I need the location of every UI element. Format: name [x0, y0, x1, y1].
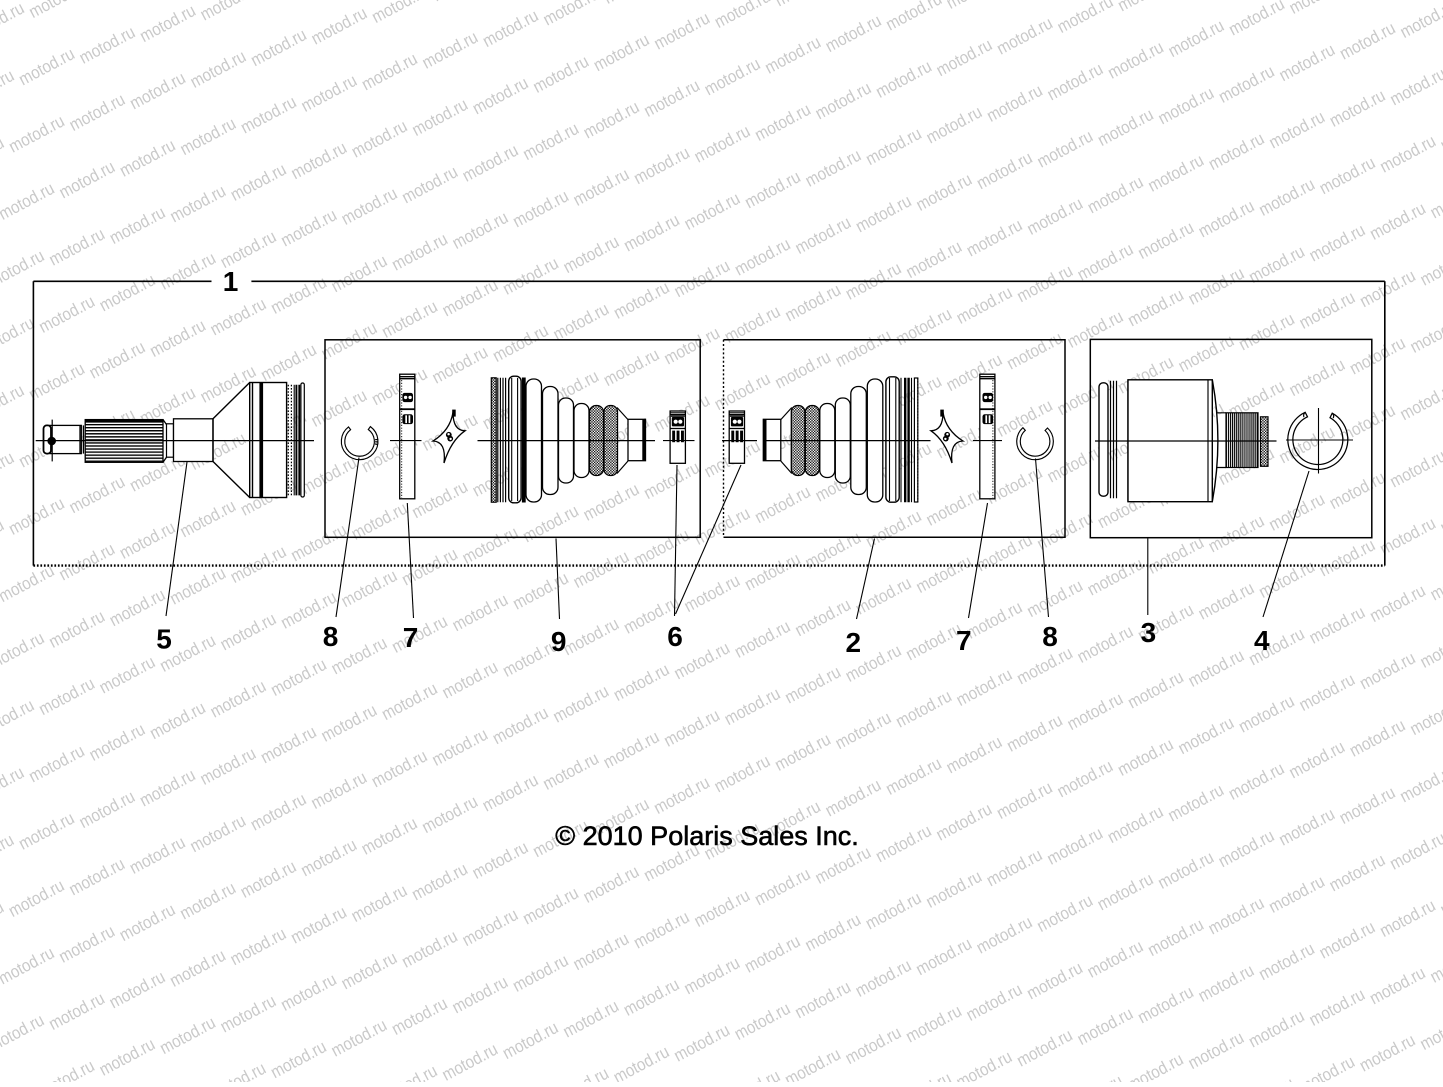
- svg-text:motod.ru: motod.ru: [550, 1064, 612, 1082]
- svg-text:motod.ru: motod.ru: [1407, 1076, 1443, 1082]
- svg-text:motod.ru: motod.ru: [601, 0, 663, 8]
- svg-text:motod.ru: motod.ru: [469, 838, 531, 883]
- svg-text:motod.ru: motod.ru: [268, 655, 330, 700]
- svg-text:motod.ru: motod.ru: [651, 9, 713, 54]
- svg-text:motod.ru: motod.ru: [671, 256, 733, 301]
- svg-text:motod.ru: motod.ru: [641, 458, 703, 503]
- svg-text:motod.ru: motod.ru: [772, 730, 834, 775]
- svg-text:motod.ru: motod.ru: [691, 886, 753, 931]
- svg-text:motod.ru: motod.ru: [298, 453, 360, 498]
- svg-text:motod.ru: motod.ru: [1336, 401, 1398, 446]
- svg-text:motod.ru: motod.ru: [207, 294, 269, 339]
- svg-text:motod.ru: motod.ru: [711, 0, 773, 32]
- svg-text:motod.ru: motod.ru: [1104, 802, 1166, 847]
- svg-text:motod.ru: motod.ru: [1407, 694, 1443, 739]
- svg-text:motod.ru: motod.ru: [439, 1040, 501, 1082]
- svg-text:motod.ru: motod.ru: [96, 1035, 158, 1080]
- svg-text:motod.ru: motod.ru: [852, 956, 914, 1001]
- svg-text:motod.ru: motod.ru: [86, 720, 148, 765]
- svg-text:motod.ru: motod.ru: [1326, 86, 1388, 131]
- svg-text:motod.ru: motod.ru: [348, 881, 410, 926]
- svg-text:motod.ru: motod.ru: [1195, 579, 1257, 624]
- svg-text:motod.ru: motod.ru: [974, 148, 1036, 193]
- svg-text:motod.ru: motod.ru: [1095, 105, 1157, 150]
- svg-text:motod.ru: motod.ru: [419, 792, 481, 837]
- svg-text:motod.ru: motod.ru: [419, 28, 481, 73]
- svg-text:motod.ru: motod.ru: [439, 658, 501, 703]
- svg-text:motod.ru: motod.ru: [520, 501, 582, 546]
- svg-text:motod.ru: motod.ru: [1397, 379, 1443, 424]
- svg-text:motod.ru: motod.ru: [943, 0, 1005, 13]
- svg-text:motod.ru: motod.ru: [247, 790, 309, 835]
- svg-text:motod.ru: motod.ru: [671, 1021, 733, 1066]
- svg-text:motod.ru: motod.ru: [1034, 127, 1096, 172]
- svg-text:motod.ru: motod.ru: [147, 316, 209, 361]
- svg-text:motod.ru: motod.ru: [742, 550, 804, 595]
- svg-text:1: 1: [223, 266, 239, 297]
- svg-text:motod.ru: motod.ru: [1336, 783, 1398, 828]
- svg-text:motod.ru: motod.ru: [1276, 422, 1338, 467]
- svg-text:motod.ru: motod.ru: [752, 864, 814, 909]
- svg-text:motod.ru: motod.ru: [500, 254, 562, 299]
- svg-text:motod.ru: motod.ru: [399, 545, 461, 590]
- svg-text:motod.ru: motod.ru: [318, 319, 380, 364]
- svg-text:motod.ru: motod.ru: [953, 1047, 1015, 1082]
- svg-text:motod.ru: motod.ru: [449, 208, 511, 253]
- svg-text:8: 8: [323, 621, 339, 652]
- svg-text:motod.ru: motod.ru: [298, 71, 360, 116]
- svg-text:motod.ru: motod.ru: [167, 181, 229, 226]
- svg-text:motod.ru: motod.ru: [923, 485, 985, 530]
- svg-text:motod.ru: motod.ru: [36, 674, 98, 719]
- svg-text:motod.ru: motod.ru: [984, 81, 1046, 126]
- svg-text:motod.ru: motod.ru: [1266, 872, 1328, 917]
- svg-text:9: 9: [551, 626, 567, 657]
- svg-text:motod.ru: motod.ru: [0, 0, 27, 44]
- svg-text:motod.ru: motod.ru: [1296, 670, 1358, 715]
- svg-text:motod.ru: motod.ru: [1266, 490, 1328, 535]
- svg-text:motod.ru: motod.ru: [893, 687, 955, 732]
- svg-text:motod.ru: motod.ru: [782, 663, 844, 708]
- svg-text:motod.ru: motod.ru: [177, 496, 239, 541]
- svg-text:motod.ru: motod.ru: [983, 845, 1045, 890]
- svg-text:motod.ru: motod.ru: [66, 472, 128, 517]
- svg-text:motod.ru: motod.ru: [358, 814, 420, 859]
- svg-text:motod.ru: motod.ru: [1387, 64, 1443, 109]
- svg-text:motod.ru: motod.ru: [701, 54, 763, 99]
- svg-text:6: 6: [667, 621, 683, 652]
- svg-text:motod.ru: motod.ru: [792, 213, 854, 258]
- svg-text:motod.ru: motod.ru: [530, 52, 592, 97]
- svg-text:motod.ru: motod.ru: [1387, 829, 1443, 874]
- svg-text:motod.ru: motod.ru: [56, 922, 118, 967]
- svg-text:motod.ru: motod.ru: [1417, 627, 1443, 672]
- svg-text:motod.ru: motod.ru: [96, 270, 158, 315]
- svg-text:motod.ru: motod.ru: [1175, 331, 1237, 376]
- svg-text:motod.ru: motod.ru: [197, 0, 259, 25]
- svg-text:motod.ru: motod.ru: [268, 273, 330, 318]
- svg-text:motod.ru: motod.ru: [661, 324, 723, 369]
- svg-text:motod.ru: motod.ru: [1125, 285, 1187, 330]
- svg-text:motod.ru: motod.ru: [1205, 129, 1267, 174]
- svg-text:motod.ru: motod.ru: [459, 141, 521, 186]
- svg-text:motod.ru: motod.ru: [449, 590, 511, 635]
- svg-text:motod.ru: motod.ru: [0, 830, 17, 875]
- svg-text:motod.ru: motod.ru: [963, 980, 1025, 1025]
- svg-text:motod.ru: motod.ru: [6, 494, 68, 539]
- svg-text:motod.ru: motod.ru: [520, 884, 582, 929]
- svg-text:motod.ru: motod.ru: [369, 0, 431, 27]
- svg-text:motod.ru: motod.ru: [66, 854, 128, 899]
- svg-text:motod.ru: motod.ru: [1014, 261, 1076, 306]
- svg-text:motod.ru: motod.ru: [1024, 958, 1086, 1003]
- svg-text:motod.ru: motod.ru: [610, 660, 672, 705]
- svg-text:motod.ru: motod.ru: [540, 749, 602, 794]
- svg-text:motod.ru: motod.ru: [782, 1045, 844, 1082]
- svg-text:motod.ru: motod.ru: [873, 821, 935, 866]
- svg-text:motod.ru: motod.ru: [6, 112, 68, 157]
- svg-text:motod.ru: motod.ru: [711, 751, 773, 796]
- svg-text:motod.ru: motod.ru: [1266, 108, 1328, 153]
- svg-text:motod.ru: motod.ru: [177, 114, 239, 159]
- svg-text:motod.ru: motod.ru: [5, 876, 67, 921]
- svg-text:motod.ru: motod.ru: [0, 179, 58, 224]
- svg-text:motod.ru: motod.ru: [994, 396, 1056, 441]
- svg-text:motod.ru: motod.ru: [641, 76, 703, 121]
- svg-text:motod.ru: motod.ru: [1064, 307, 1126, 352]
- svg-text:motod.ru: motod.ru: [1225, 759, 1287, 804]
- svg-text:motod.ru: motod.ru: [1115, 0, 1177, 16]
- svg-text:motod.ru: motod.ru: [298, 835, 360, 880]
- svg-text:motod.ru: motod.ru: [1054, 0, 1116, 37]
- svg-text:motod.ru: motod.ru: [1356, 1031, 1418, 1076]
- svg-text:motod.ru: motod.ru: [328, 251, 390, 296]
- svg-text:motod.ru: motod.ru: [288, 903, 350, 948]
- svg-text:motod.ru: motod.ru: [399, 927, 461, 972]
- svg-text:motod.ru: motod.ru: [1346, 716, 1408, 761]
- svg-text:motod.ru: motod.ru: [379, 679, 441, 724]
- svg-text:motod.ru: motod.ru: [227, 160, 289, 205]
- svg-text:motod.ru: motod.ru: [217, 609, 279, 654]
- svg-text:motod.ru: motod.ru: [1306, 603, 1368, 648]
- svg-text:motod.ru: motod.ru: [651, 773, 713, 818]
- svg-text:motod.ru: motod.ru: [1326, 850, 1388, 895]
- svg-text:motod.ru: motod.ru: [56, 157, 118, 202]
- svg-text:motod.ru: motod.ru: [449, 972, 511, 1017]
- svg-text:motod.ru: motod.ru: [187, 811, 249, 856]
- svg-text:motod.ru: motod.ru: [832, 326, 894, 371]
- svg-text:motod.ru: motod.ru: [26, 359, 88, 404]
- svg-text:motod.ru: motod.ru: [893, 1069, 955, 1082]
- svg-text:3: 3: [1141, 617, 1157, 648]
- svg-text:motod.ru: motod.ru: [127, 68, 189, 113]
- svg-text:motod.ru: motod.ru: [752, 100, 814, 145]
- svg-text:motod.ru: motod.ru: [1185, 1028, 1247, 1073]
- svg-text:motod.ru: motod.ru: [883, 754, 945, 799]
- svg-text:motod.ru: motod.ru: [147, 698, 209, 743]
- svg-text:motod.ru: motod.ru: [590, 30, 652, 75]
- svg-text:motod.ru: motod.ru: [338, 948, 400, 993]
- svg-text:motod.ru: motod.ru: [0, 1011, 47, 1056]
- svg-text:motod.ru: motod.ru: [822, 776, 884, 821]
- svg-text:motod.ru: motod.ru: [1135, 218, 1197, 263]
- svg-text:motod.ru: motod.ru: [620, 975, 682, 1020]
- svg-text:motod.ru: motod.ru: [46, 607, 108, 652]
- svg-text:motod.ru: motod.ru: [1165, 16, 1227, 61]
- svg-text:motod.ru: motod.ru: [1417, 1009, 1443, 1054]
- svg-text:4: 4: [1254, 625, 1270, 656]
- svg-text:motod.ru: motod.ru: [1306, 985, 1368, 1030]
- svg-text:motod.ru: motod.ru: [1115, 735, 1177, 780]
- svg-text:motod.ru: motod.ru: [86, 0, 148, 1]
- svg-text:motod.ru: motod.ru: [1084, 555, 1146, 600]
- svg-text:motod.ru: motod.ru: [943, 350, 1005, 395]
- svg-text:motod.ru: motod.ru: [742, 167, 804, 212]
- svg-text:motod.ru: motod.ru: [76, 23, 138, 68]
- svg-text:motod.ru: motod.ru: [0, 1078, 37, 1082]
- svg-text:motod.ru: motod.ru: [66, 90, 128, 135]
- svg-text:8: 8: [1042, 621, 1058, 652]
- svg-text:motod.ru: motod.ru: [1256, 939, 1318, 984]
- svg-text:motod.ru: motod.ru: [1397, 0, 1443, 42]
- svg-text:motod.ru: motod.ru: [1367, 199, 1429, 244]
- svg-text:motod.ru: motod.ru: [661, 706, 723, 751]
- svg-text:motod.ru: motod.ru: [86, 338, 148, 383]
- svg-text:motod.ru: motod.ru: [116, 518, 178, 563]
- svg-text:motod.ru: motod.ru: [1054, 756, 1116, 801]
- svg-text:motod.ru: motod.ru: [560, 997, 622, 1042]
- svg-text:motod.ru: motod.ru: [268, 1037, 330, 1082]
- svg-text:motod.ru: motod.ru: [1155, 848, 1217, 893]
- svg-text:motod.ru: motod.ru: [510, 569, 572, 614]
- svg-text:motod.ru: motod.ru: [772, 0, 834, 11]
- svg-text:motod.ru: motod.ru: [1367, 963, 1429, 1008]
- svg-text:motod.ru: motod.ru: [1195, 196, 1257, 241]
- svg-text:motod.ru: motod.ru: [923, 867, 985, 912]
- svg-text:motod.ru: motod.ru: [792, 977, 854, 1022]
- svg-text:motod.ru: motod.ru: [368, 746, 430, 791]
- svg-text:motod.ru: motod.ru: [479, 771, 541, 816]
- svg-text:motod.ru: motod.ru: [1286, 737, 1348, 782]
- svg-text:motod.ru: motod.ru: [812, 78, 874, 123]
- svg-text:motod.ru: motod.ru: [600, 345, 662, 390]
- svg-text:motod.ru: motod.ru: [157, 1013, 219, 1058]
- svg-text:motod.ru: motod.ru: [711, 369, 773, 414]
- svg-text:7: 7: [403, 622, 419, 653]
- svg-text:motod.ru: motod.ru: [731, 617, 793, 662]
- svg-text:motod.ru: motod.ru: [903, 1002, 965, 1047]
- svg-text:motod.ru: motod.ru: [1145, 151, 1207, 196]
- svg-text:motod.ru: motod.ru: [167, 564, 229, 609]
- svg-text:motod.ru: motod.ru: [187, 47, 249, 92]
- svg-text:motod.ru: motod.ru: [1125, 668, 1187, 713]
- svg-text:motod.ru: motod.ru: [0, 246, 48, 291]
- svg-text:motod.ru: motod.ru: [389, 994, 451, 1039]
- svg-text:motod.ru: motod.ru: [681, 189, 743, 234]
- svg-text:motod.ru: motod.ru: [953, 283, 1015, 328]
- svg-text:motod.ru: motod.ru: [802, 146, 864, 191]
- svg-text:motod.ru: motod.ru: [1135, 982, 1197, 1027]
- svg-text:motod.ru: motod.ru: [600, 727, 662, 772]
- svg-text:motod.ru: motod.ru: [258, 0, 320, 3]
- svg-text:motod.ru: motod.ru: [1074, 240, 1136, 285]
- svg-text:motod.ru: motod.ru: [338, 184, 400, 229]
- svg-text:motod.ru: motod.ru: [550, 682, 612, 727]
- svg-text:motod.ru: motod.ru: [1094, 869, 1156, 914]
- svg-text:motod.ru: motod.ru: [359, 49, 421, 94]
- svg-text:motod.ru: motod.ru: [1185, 646, 1247, 691]
- svg-text:motod.ru: motod.ru: [1175, 713, 1237, 758]
- svg-text:motod.ru: motod.ru: [1226, 0, 1288, 40]
- svg-text:motod.ru: motod.ru: [0, 763, 27, 808]
- svg-text:motod.ru: motod.ru: [1387, 447, 1443, 492]
- svg-text:motod.ru: motod.ru: [923, 103, 985, 148]
- svg-text:motod.ru: motod.ru: [227, 924, 289, 969]
- svg-text:motod.ru: motod.ru: [0, 628, 47, 673]
- svg-text:motod.ru: motod.ru: [106, 203, 168, 248]
- svg-text:motod.ru: motod.ru: [1377, 896, 1439, 941]
- svg-text:motod.ru: motod.ru: [560, 614, 622, 659]
- svg-text:motod.ru: motod.ru: [953, 665, 1015, 710]
- svg-text:motod.ru: motod.ru: [429, 343, 491, 388]
- svg-text:motod.ru: motod.ru: [963, 598, 1025, 643]
- svg-text:motod.ru: motod.ru: [1286, 355, 1348, 400]
- svg-text:motod.ru: motod.ru: [1215, 826, 1277, 871]
- svg-text:motod.ru: motod.ru: [207, 1059, 269, 1082]
- svg-text:motod.ru: motod.ru: [1337, 19, 1399, 64]
- svg-text:motod.ru: motod.ru: [752, 482, 814, 527]
- svg-text:motod.ru: motod.ru: [842, 1023, 904, 1068]
- svg-text:motod.ru: motod.ru: [258, 340, 320, 385]
- svg-text:motod.ru: motod.ru: [1427, 560, 1443, 605]
- svg-text:motod.ru: motod.ru: [994, 778, 1056, 823]
- svg-text:motod.ru: motod.ru: [106, 967, 168, 1012]
- svg-text:motod.ru: motod.ru: [0, 381, 27, 426]
- svg-text:motod.ru: motod.ru: [1216, 62, 1278, 107]
- svg-text:motod.ru: motod.ru: [499, 1018, 561, 1063]
- svg-text:motod.ru: motod.ru: [197, 744, 259, 789]
- svg-text:motod.ru: motod.ru: [238, 93, 300, 138]
- svg-text:motod.ru: motod.ru: [0, 696, 37, 741]
- svg-text:motod.ru: motod.ru: [56, 540, 118, 585]
- svg-text:motod.ru: motod.ru: [1286, 0, 1348, 18]
- svg-text:motod.ru: motod.ru: [863, 124, 925, 169]
- svg-text:motod.ru: motod.ru: [409, 859, 471, 904]
- svg-text:motod.ru: motod.ru: [348, 117, 410, 162]
- svg-text:motod.ru: motod.ru: [1044, 824, 1106, 869]
- svg-text:motod.ru: motod.ru: [1004, 329, 1066, 374]
- svg-text:motod.ru: motod.ru: [318, 701, 380, 746]
- svg-text:motod.ru: motod.ru: [1235, 1074, 1297, 1082]
- svg-text:motod.ru: motod.ru: [16, 809, 78, 854]
- svg-text:motod.ru: motod.ru: [469, 73, 531, 118]
- svg-text:motod.ru: motod.ru: [409, 95, 471, 140]
- svg-text:motod.ru: motod.ru: [248, 25, 310, 70]
- svg-text:motod.ru: motod.ru: [1246, 1007, 1308, 1052]
- svg-text:motod.ru: motod.ru: [1347, 334, 1409, 379]
- svg-text:motod.ru: motod.ru: [116, 900, 178, 945]
- svg-text:motod.ru: motod.ru: [510, 951, 572, 996]
- svg-text:motod.ru: motod.ru: [76, 787, 138, 832]
- svg-text:motod.ru: motod.ru: [288, 520, 350, 565]
- svg-text:motod.ru: motod.ru: [278, 206, 340, 251]
- svg-text:motod.ru: motod.ru: [570, 547, 632, 592]
- svg-text:motod.ru: motod.ru: [288, 138, 350, 183]
- svg-text:motod.ru: motod.ru: [1205, 511, 1267, 556]
- svg-text:motod.ru: motod.ru: [903, 237, 965, 282]
- svg-text:motod.ru: motod.ru: [480, 6, 542, 51]
- svg-text:motod.ru: motod.ru: [1064, 1071, 1126, 1082]
- svg-text:motod.ru: motod.ru: [1074, 1004, 1136, 1049]
- svg-text:motod.ru: motod.ru: [631, 143, 693, 188]
- svg-text:motod.ru: motod.ru: [1044, 442, 1106, 487]
- svg-text:motod.ru: motod.ru: [943, 732, 1005, 777]
- svg-text:motod.ru: motod.ru: [772, 348, 834, 393]
- svg-text:motod.ru: motod.ru: [721, 1066, 783, 1082]
- svg-text:motod.ru: motod.ru: [1084, 172, 1146, 217]
- svg-text:motod.ru: motod.ru: [1417, 245, 1443, 290]
- svg-text:motod.ru: motod.ru: [1367, 581, 1429, 626]
- svg-text:motod.ru: motod.ru: [1044, 59, 1106, 104]
- svg-text:motod.ru: motod.ru: [913, 170, 975, 215]
- svg-text:motod.ru: motod.ru: [762, 33, 824, 78]
- svg-text:motod.ru: motod.ru: [580, 862, 642, 907]
- svg-text:motod.ru: motod.ru: [126, 833, 188, 878]
- svg-text:7: 7: [956, 625, 972, 656]
- svg-text:motod.ru: motod.ru: [308, 386, 370, 431]
- svg-text:5: 5: [156, 624, 172, 655]
- svg-text:motod.ru: motod.ru: [1034, 891, 1096, 936]
- svg-text:motod.ru: motod.ru: [1236, 692, 1298, 737]
- svg-text:motod.ru: motod.ru: [1105, 38, 1167, 83]
- svg-text:motod.ru: motod.ru: [1377, 132, 1439, 177]
- svg-text:motod.ru: motod.ru: [1276, 805, 1338, 850]
- svg-text:motod.ru: motod.ru: [1074, 622, 1136, 667]
- svg-text:motod.ru: motod.ru: [1316, 918, 1378, 963]
- svg-text:motod.ru: motod.ru: [0, 943, 57, 988]
- svg-text:motod.ru: motod.ru: [832, 708, 894, 753]
- svg-text:motod.ru: motod.ru: [731, 999, 793, 1044]
- svg-text:motod.ru: motod.ru: [1316, 535, 1378, 580]
- svg-text:motod.ru: motod.ru: [822, 11, 884, 56]
- svg-text:motod.ru: motod.ru: [258, 722, 320, 767]
- svg-text:motod.ru: motod.ru: [963, 216, 1025, 261]
- svg-text:motod.ru: motod.ru: [1246, 242, 1308, 287]
- svg-text:motod.ru: motod.ru: [1256, 557, 1318, 602]
- svg-text:motod.ru: motod.ru: [973, 913, 1035, 958]
- svg-text:motod.ru: motod.ru: [1125, 1050, 1187, 1082]
- svg-text:motod.ru: motod.ru: [16, 44, 78, 89]
- svg-text:motod.ru: motod.ru: [36, 1056, 98, 1082]
- svg-text:motod.ru: motod.ru: [459, 905, 521, 950]
- svg-text:motod.ru: motod.ru: [338, 566, 400, 611]
- svg-text:motod.ru: motod.ru: [933, 35, 995, 80]
- svg-text:motod.ru: motod.ru: [913, 934, 975, 979]
- svg-text:motod.ru: motod.ru: [631, 525, 693, 570]
- svg-text:motod.ru: motod.ru: [378, 1061, 440, 1082]
- svg-text:motod.ru: motod.ru: [26, 741, 88, 786]
- svg-text:motod.ru: motod.ru: [237, 857, 299, 902]
- svg-text:motod.ru: motod.ru: [933, 800, 995, 845]
- svg-text:motod.ru: motod.ru: [0, 66, 17, 111]
- svg-text:motod.ru: motod.ru: [0, 314, 37, 359]
- svg-text:motod.ru: motod.ru: [1427, 177, 1443, 222]
- svg-text:motod.ru: motod.ru: [1084, 937, 1146, 982]
- svg-text:motod.ru: motod.ru: [328, 1016, 390, 1061]
- svg-text:motod.ru: motod.ru: [308, 4, 370, 49]
- svg-text:motod.ru: motod.ru: [1205, 894, 1267, 939]
- svg-text:motod.ru: motod.ru: [1357, 266, 1419, 311]
